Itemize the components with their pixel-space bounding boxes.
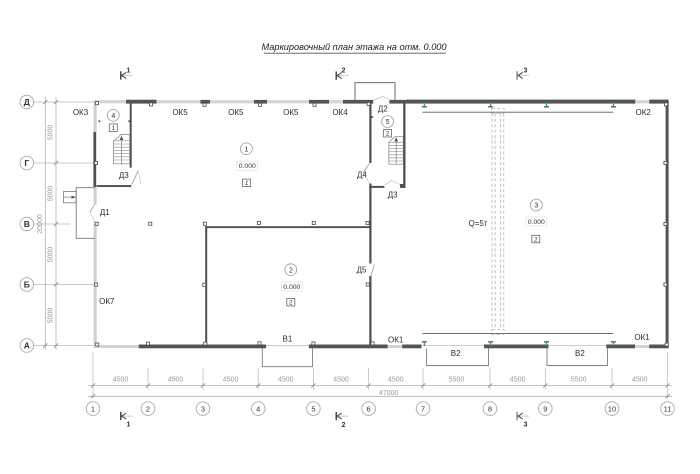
svg-text:Д: Д: [24, 97, 30, 107]
svg-text:2: 2: [289, 300, 293, 307]
svg-text:ОК5: ОК5: [172, 108, 188, 117]
svg-text:2: 2: [341, 68, 345, 75]
svg-text:3: 3: [523, 422, 527, 429]
svg-text:В2: В2: [451, 349, 461, 358]
svg-text:Q=5т: Q=5т: [468, 219, 487, 228]
svg-text:4: 4: [111, 113, 115, 120]
svg-text:ОК1: ОК1: [634, 333, 650, 342]
svg-text:4: 4: [256, 405, 260, 414]
svg-text:ОК2: ОК2: [636, 108, 652, 117]
svg-text:В: В: [24, 219, 30, 229]
svg-text:Д2: Д2: [378, 105, 388, 114]
svg-text:Д5: Д5: [357, 265, 367, 274]
svg-text:5000: 5000: [48, 125, 55, 141]
svg-text:2: 2: [289, 267, 293, 274]
svg-text:5: 5: [386, 119, 390, 126]
svg-text:11: 11: [664, 405, 672, 414]
svg-text:Д4: Д4: [357, 170, 367, 179]
svg-text:Г: Г: [24, 158, 29, 168]
svg-text:4500: 4500: [333, 377, 349, 384]
svg-text:Д3: Д3: [119, 171, 129, 180]
svg-text:ОК5: ОК5: [228, 108, 244, 117]
svg-text:2: 2: [146, 405, 150, 414]
svg-text:3: 3: [523, 67, 527, 74]
svg-text:47000: 47000: [379, 390, 399, 397]
svg-text:В2: В2: [575, 349, 585, 358]
svg-text:5000: 5000: [48, 308, 55, 324]
svg-text:Д3: Д3: [388, 191, 398, 200]
svg-text:Д1: Д1: [100, 208, 110, 217]
svg-text:8: 8: [488, 405, 492, 414]
svg-text:1: 1: [126, 67, 130, 74]
svg-text:1: 1: [244, 147, 248, 154]
svg-text:9: 9: [543, 405, 547, 414]
svg-text:4500: 4500: [278, 377, 294, 384]
svg-text:6: 6: [367, 405, 371, 414]
svg-text:5: 5: [311, 405, 315, 414]
svg-text:5000: 5000: [48, 247, 55, 263]
svg-text:7: 7: [421, 405, 425, 414]
svg-text:3: 3: [534, 203, 538, 210]
svg-text:Б: Б: [24, 280, 30, 290]
svg-text:ОК1: ОК1: [388, 335, 404, 344]
svg-text:5500: 5500: [571, 377, 587, 384]
svg-text:4500: 4500: [388, 377, 404, 384]
svg-text:5500: 5500: [449, 377, 465, 384]
svg-text:Маркировочный план этажа на от: Маркировочный план этажа на отм. 0.000: [261, 42, 447, 52]
svg-text:ОК4: ОК4: [332, 108, 348, 117]
svg-text:4500: 4500: [223, 377, 239, 384]
svg-text:4500: 4500: [632, 377, 648, 384]
svg-text:4500: 4500: [113, 377, 129, 384]
svg-text:4500: 4500: [168, 377, 184, 384]
svg-text:1: 1: [245, 180, 249, 187]
svg-text:4500: 4500: [510, 377, 526, 384]
svg-text:ОК3: ОК3: [73, 108, 89, 117]
svg-text:ОК5: ОК5: [283, 108, 299, 117]
svg-text:1: 1: [91, 405, 95, 414]
svg-text:0.000: 0.000: [528, 219, 545, 226]
svg-text:3: 3: [201, 405, 205, 414]
svg-text:2: 2: [386, 131, 390, 138]
svg-text:В1: В1: [283, 335, 293, 344]
svg-text:0.000: 0.000: [283, 284, 300, 291]
svg-text:5000: 5000: [48, 186, 55, 202]
svg-text:0.000: 0.000: [239, 163, 256, 170]
svg-text:А: А: [24, 341, 30, 351]
svg-text:10: 10: [608, 405, 616, 414]
svg-text:20000: 20000: [37, 214, 44, 234]
svg-text:ОК7: ОК7: [99, 297, 115, 306]
svg-text:1: 1: [111, 125, 115, 132]
svg-text:1: 1: [126, 422, 130, 429]
svg-text:2: 2: [534, 236, 538, 243]
svg-text:2: 2: [341, 422, 345, 429]
